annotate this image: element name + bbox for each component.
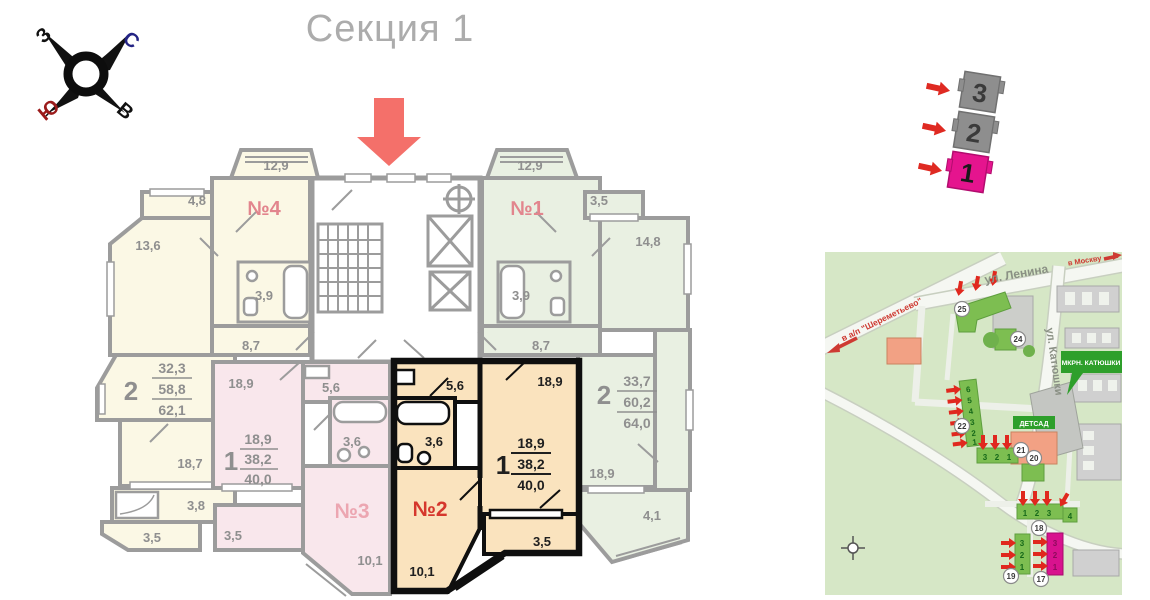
apt2-bath-area: 3,6 [425, 434, 443, 449]
map-b17-section: 1 [1053, 563, 1058, 572]
elevators [428, 216, 472, 310]
apt4-room-area: 13,6 [135, 238, 160, 253]
map-building-22-label: 22 [958, 422, 967, 431]
apt3-room-area: 18,9 [228, 376, 253, 391]
apartment-right-2room[interactable]: 2 33,7 60,2 64,0 18,9 4,1 [578, 330, 693, 562]
tree-icon [983, 332, 999, 348]
map-building-20-label: 20 [1030, 454, 1039, 463]
apt2-room-area: 18,9 [537, 374, 562, 389]
left2-room1-area: 18,7 [177, 456, 202, 471]
left2-rooms-count: 2 [124, 376, 138, 406]
map-b18-section: 2 [1035, 509, 1040, 518]
map-building-21-label: 21 [1017, 446, 1026, 455]
apt2-kitchen-area: 10,1 [409, 564, 434, 579]
apt3-full-area: 40,0 [244, 471, 271, 487]
apt2-hall-area: 5,6 [446, 378, 464, 393]
apartment-3[interactable]: 18,9 5,6 3,6 1 18,9 38,2 40,0 №3 10,1 3,… [213, 340, 390, 596]
tree-icon [1023, 345, 1035, 357]
apt4-bath-area: 3,9 [255, 288, 273, 303]
map-kindergarten-label: ДЕТСАД [1019, 421, 1048, 428]
map-b17-section: 2 [1053, 551, 1058, 560]
map-building-24-label: 24 [1014, 335, 1023, 344]
map-b19-section: 1 [1020, 563, 1025, 572]
right2-full-area: 64,0 [623, 415, 650, 431]
apt4-label[interactable]: №4 [247, 198, 281, 220]
compass-south: Ю [34, 95, 64, 125]
map-building-22[interactable]: 6 5 4 3 2 1 [945, 379, 984, 449]
apt3-living-area: 18,9 [244, 431, 271, 447]
apt2-label[interactable]: №2 [412, 498, 447, 521]
apt2-living-area: 18,9 [517, 435, 544, 451]
apt2-rooms-count: 1 [496, 450, 510, 480]
apt3-balcony-area: 3,5 [224, 528, 242, 543]
apt1-closet-area: 3,5 [590, 193, 608, 208]
location-map[interactable]: 25 24 ДЕТСАД 6 5 4 3 2 1 22 [825, 252, 1122, 595]
left2-bath-area: 3,8 [187, 498, 205, 513]
apt4-bay-area: 12,9 [263, 158, 288, 173]
map-compass-icon [841, 536, 865, 560]
apt2-full-area: 40,0 [517, 477, 544, 493]
left2-full-area: 62,1 [158, 402, 185, 418]
map-building-25-label: 25 [958, 305, 967, 314]
apartment-4[interactable]: 12,9 №4 4,8 13,6 3,9 8,7 [107, 150, 318, 355]
map-b21-section: 3 [983, 453, 988, 462]
apt3-kitchen-area: 10,1 [357, 553, 382, 568]
map-b19-section: 3 [1020, 539, 1025, 548]
floor-1-block-active[interactable]: 1 [943, 151, 993, 194]
map-b18-section: 3 [1047, 509, 1052, 518]
right2-living-area: 33,7 [623, 373, 650, 389]
apt4-hall-area: 8,7 [242, 338, 260, 353]
apt1-room-area: 14,8 [635, 234, 660, 249]
apt1-bay-area: 12,9 [517, 158, 542, 173]
district-badge-label: МКРН. КАТЮШКИ [1062, 360, 1121, 367]
map-b18-section: 1 [1023, 509, 1028, 518]
map-building-19-label: 19 [1007, 572, 1016, 581]
floor-2-block[interactable]: 2 [949, 111, 999, 154]
left2-living-area: 32,3 [158, 360, 185, 376]
right2-total-area: 60,2 [623, 394, 650, 410]
apt2-total-area: 38,2 [517, 456, 544, 472]
compass-north: С [118, 27, 143, 53]
map-b21-section: 1 [1007, 453, 1012, 462]
garbage-chute-icon [443, 184, 475, 214]
apt1-label[interactable]: №1 [510, 198, 543, 220]
apt3-rooms-count: 1 [224, 446, 238, 476]
floor-2-arrow-icon [921, 119, 947, 138]
map-building-17-label: 17 [1037, 575, 1046, 584]
compass-ring [68, 56, 104, 92]
right2-rooms-count: 2 [597, 380, 611, 410]
floor-3-block[interactable]: 3 [955, 71, 1005, 114]
direction-sheremetyevo-label: в а/п "Шереметьево" [840, 295, 924, 343]
apartment-2-selected[interactable]: 5,6 3,6 18,9 1 18,9 38,2 40,0 №2 10,1 3,… [393, 360, 579, 592]
apt2-balcony-area: 3,5 [533, 534, 551, 549]
map-b21-section: 2 [995, 453, 1000, 462]
map-b19-section: 2 [1020, 551, 1025, 560]
stairwell-core [312, 174, 480, 362]
floor-selector: 3 2 1 [918, 62, 1023, 207]
apartment-1[interactable]: 12,9 №1 3,5 14,8 3,9 8,7 [478, 150, 691, 355]
apt3-hall-area: 5,6 [322, 380, 340, 395]
floor-1-arrow-icon [918, 159, 943, 178]
left2-balcony-area: 3,5 [143, 530, 161, 545]
right2-balcony-area: 4,1 [643, 508, 661, 523]
apt3-bath-area: 3,6 [343, 434, 361, 449]
page: Секция 1 З С Ю В [0, 0, 1150, 600]
map-building-18-label: 18 [1035, 524, 1044, 533]
map-b17-section: 3 [1053, 539, 1058, 548]
apt1-hall-area: 8,7 [532, 338, 550, 353]
map-b18-section: 4 [1068, 512, 1073, 521]
apt1-bath-area: 3,9 [512, 288, 530, 303]
apt4-closet-area: 4,8 [188, 193, 206, 208]
apt3-label[interactable]: №3 [334, 500, 369, 523]
apt3-total-area: 38,2 [244, 451, 271, 467]
left2-total-area: 58,8 [158, 381, 185, 397]
section-title: Секция 1 [240, 8, 540, 51]
right2-room1-area: 18,9 [589, 466, 614, 481]
map-building-19[interactable]: 3 2 1 19 [1001, 534, 1030, 584]
entrance-arrow [357, 98, 421, 166]
floor-3-arrow-icon [925, 79, 951, 98]
map-building-17-current[interactable]: 3 2 1 17 [1033, 533, 1063, 587]
stairs [318, 224, 382, 312]
